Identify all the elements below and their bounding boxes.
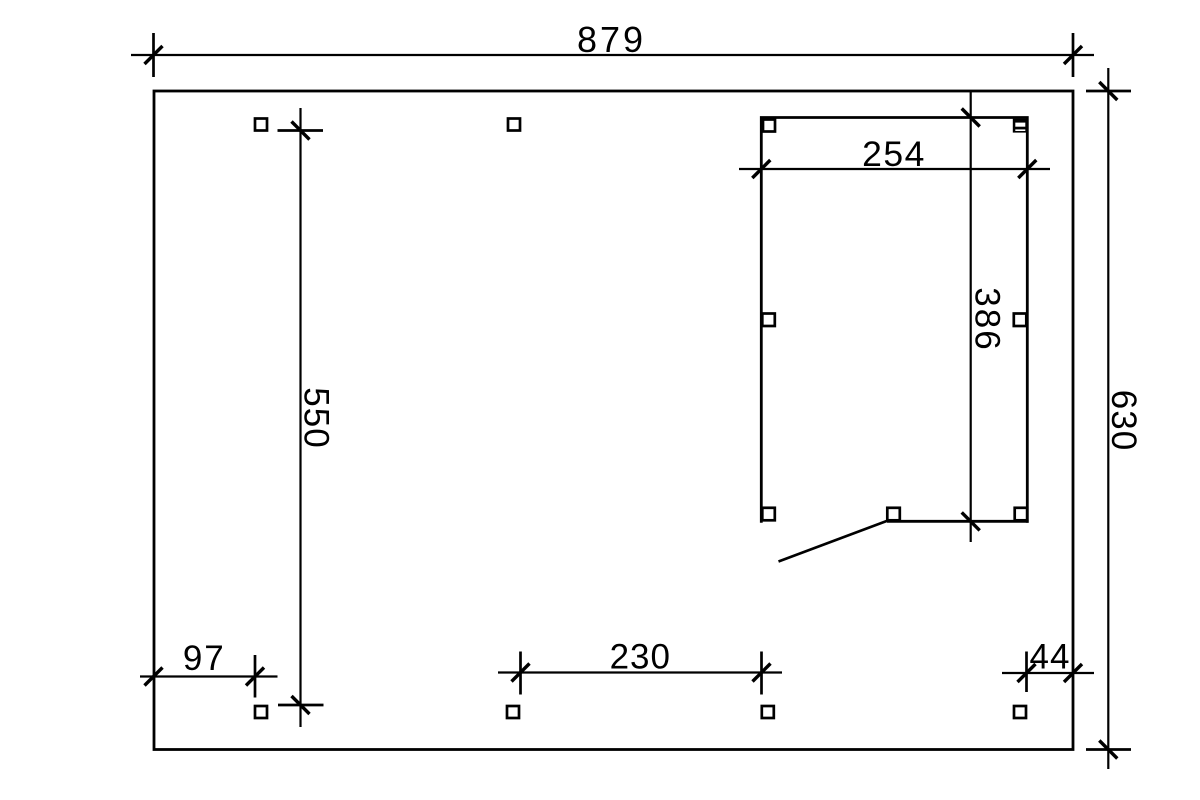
svg-text:630: 630 bbox=[1104, 390, 1143, 451]
svg-text:386: 386 bbox=[968, 287, 1007, 351]
svg-text:97: 97 bbox=[183, 639, 226, 678]
svg-text:230: 230 bbox=[610, 638, 671, 677]
svg-text:254: 254 bbox=[862, 134, 926, 174]
svg-text:550: 550 bbox=[297, 387, 336, 448]
svg-text:879: 879 bbox=[577, 19, 646, 60]
svg-text:44: 44 bbox=[1030, 638, 1071, 677]
